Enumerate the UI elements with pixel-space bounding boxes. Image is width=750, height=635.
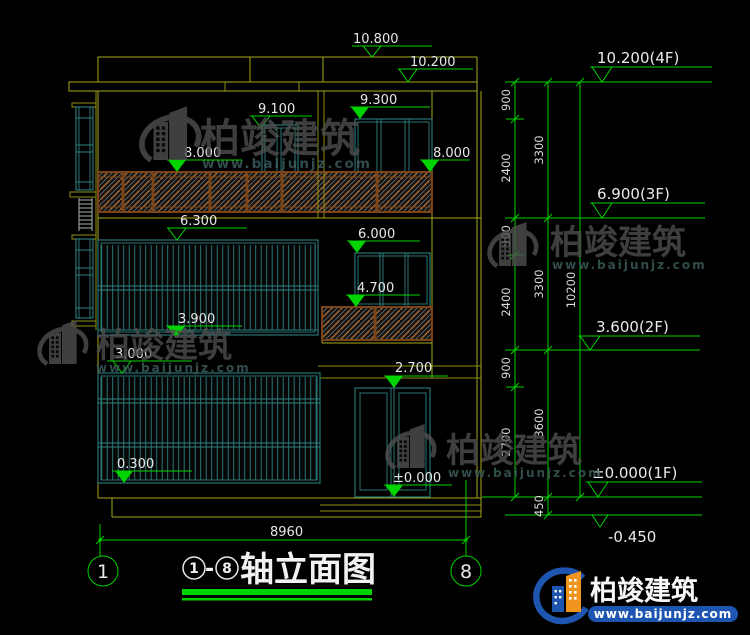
dim-8960: 8960 xyxy=(270,525,303,540)
watermark-url: www.baijunjz.com xyxy=(202,156,372,172)
marker-4700-label: 4.700 xyxy=(357,281,394,296)
dim-2400-a: 2400 xyxy=(499,153,513,182)
cad-canvas: 900 2400 900 2400 900 2700 3300 3300 360… xyxy=(0,0,750,635)
dim-900-c: 900 xyxy=(499,357,513,379)
window-2f-right xyxy=(355,253,430,307)
marker-6000: 6.000 xyxy=(347,227,420,253)
marker-9300: 9.300 xyxy=(350,93,430,119)
dim-3300-b: 3300 xyxy=(532,269,546,298)
watermark-left: 柏竣建筑 www.baijunjz.com xyxy=(40,320,251,375)
stair-window-upper xyxy=(76,107,93,190)
marker-6000-label: 6.000 xyxy=(358,227,395,242)
marker-0000-label: ±0.000 xyxy=(393,471,441,486)
marker-8000-right-label: 8.000 xyxy=(433,146,470,161)
floor-marker-neg450: -0.450 xyxy=(592,515,656,546)
dim-10200-total: 10200 xyxy=(564,272,578,309)
floor-marker-2f-label: 3.600(2F) xyxy=(596,318,669,336)
marker-10200-label: 10.200 xyxy=(410,55,456,70)
watermark-url: www.baijunjz.com xyxy=(448,466,603,480)
marker-2700: 2.700 xyxy=(384,361,448,388)
floor-marker-3f: 6.900(3F) xyxy=(590,185,705,218)
brand-logo-url: www.baijunjz.com xyxy=(594,607,733,621)
balcony-rail-2f xyxy=(322,307,432,340)
watermark-url: www.baijunjz.com xyxy=(552,258,707,272)
drawing-title: 1 - 8 轴立面图 xyxy=(182,550,376,601)
marker-0300-label: 0.300 xyxy=(117,457,154,472)
marker-10800-label: 10.800 xyxy=(353,32,399,47)
marker-10200: 10.200 xyxy=(398,55,473,82)
balcony-rail-3f xyxy=(98,172,432,212)
watermark-name: 柏竣建筑 xyxy=(550,223,686,263)
floor-marker-neg450-label: -0.450 xyxy=(608,528,656,546)
watermark-url: www.baijunjz.com xyxy=(96,361,251,375)
floor-marker-3f-label: 6.900(3F) xyxy=(597,185,670,203)
marker-3900-label: 3.900 xyxy=(178,312,215,327)
brand-logo-icon xyxy=(536,571,586,621)
marker-9300-label: 9.300 xyxy=(360,93,397,108)
elevation-drawing: 900 2400 900 2400 900 2700 3300 3300 360… xyxy=(0,0,750,635)
floor-marker-4f: 10.200(4F) xyxy=(590,49,712,82)
dim-3300-a: 3300 xyxy=(532,135,546,164)
floor-marker-4f-label: 10.200(4F) xyxy=(597,49,679,67)
title-text: 轴立面图 xyxy=(240,550,376,590)
dim-900-a: 900 xyxy=(499,89,513,111)
marker-8000-right: 8.000 xyxy=(420,146,470,172)
watermark-right: 柏竣建筑 www.baijunjz.com xyxy=(490,222,707,272)
width-dimension: 8960 xyxy=(96,480,470,556)
brand-logo: 柏竣建筑 www.baijunjz.com xyxy=(536,571,738,622)
floor-marker-1f-label: ±0.000(1F) xyxy=(592,464,677,482)
floor-marker-1f: ±0.000(1F) xyxy=(586,464,702,497)
title-axis-start: 1 xyxy=(189,561,199,577)
marker-2700-label: 2.700 xyxy=(395,361,432,376)
floor-marker-2f: 3.600(2F) xyxy=(578,318,700,350)
title-underline-thick xyxy=(182,589,372,595)
title-axis-end: 8 xyxy=(222,561,232,577)
title-underline-thin xyxy=(182,598,372,601)
marker-9100-label: 9.100 xyxy=(258,102,295,117)
axis-bubble-8: 8 xyxy=(460,561,472,583)
watermark-name: 柏竣建筑 xyxy=(446,431,582,471)
marker-0000: ±0.000 xyxy=(384,471,452,497)
title-separator: - xyxy=(205,557,214,582)
marker-6300-label: 6.300 xyxy=(180,214,217,229)
axis-bubble-1: 1 xyxy=(97,561,109,583)
stair-window-lower xyxy=(76,239,93,318)
marker-10800: 10.800 xyxy=(352,32,432,57)
watermark-name: 柏竣建筑 xyxy=(96,326,232,366)
brand-logo-name: 柏竣建筑 xyxy=(590,575,698,607)
dim-2400-b: 2400 xyxy=(499,287,513,316)
stair-vent-ladder xyxy=(79,198,92,231)
dim-450: 450 xyxy=(532,495,546,517)
